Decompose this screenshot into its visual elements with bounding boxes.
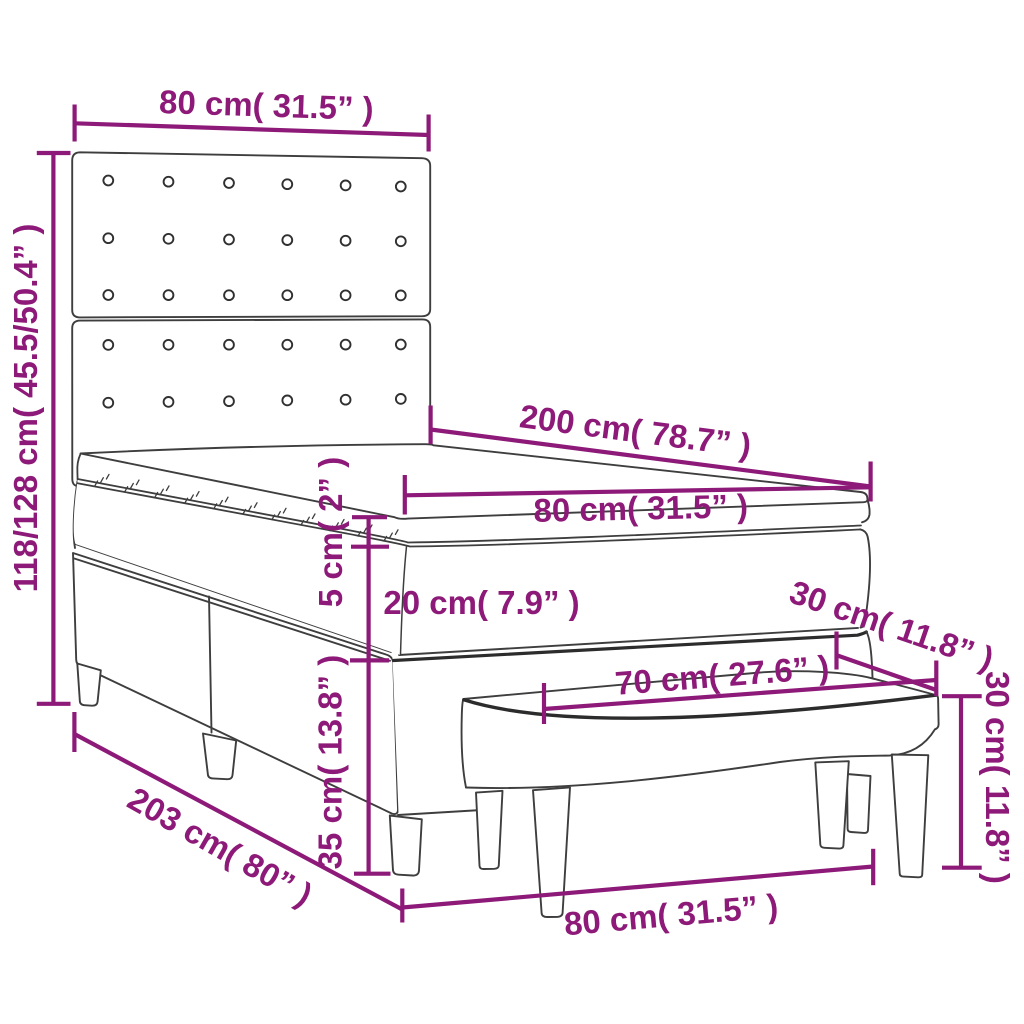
svg-text:80 cm( 31.5” ): 80 cm( 31.5” ) [159, 83, 375, 127]
svg-text:30 cm( 11.8” ): 30 cm( 11.8” ) [979, 671, 1016, 884]
svg-text:5 cm( 2” ): 5 cm( 2” ) [312, 457, 349, 607]
svg-text:20 cm( 7.9” ): 20 cm( 7.9” ) [383, 584, 579, 621]
svg-text:118/128 cm( 45.5/50.4” ): 118/128 cm( 45.5/50.4” ) [7, 224, 44, 593]
svg-text:80 cm( 31.5” ): 80 cm( 31.5” ) [533, 487, 748, 529]
svg-text:35 cm( 13.8” ): 35 cm( 13.8” ) [311, 655, 348, 870]
